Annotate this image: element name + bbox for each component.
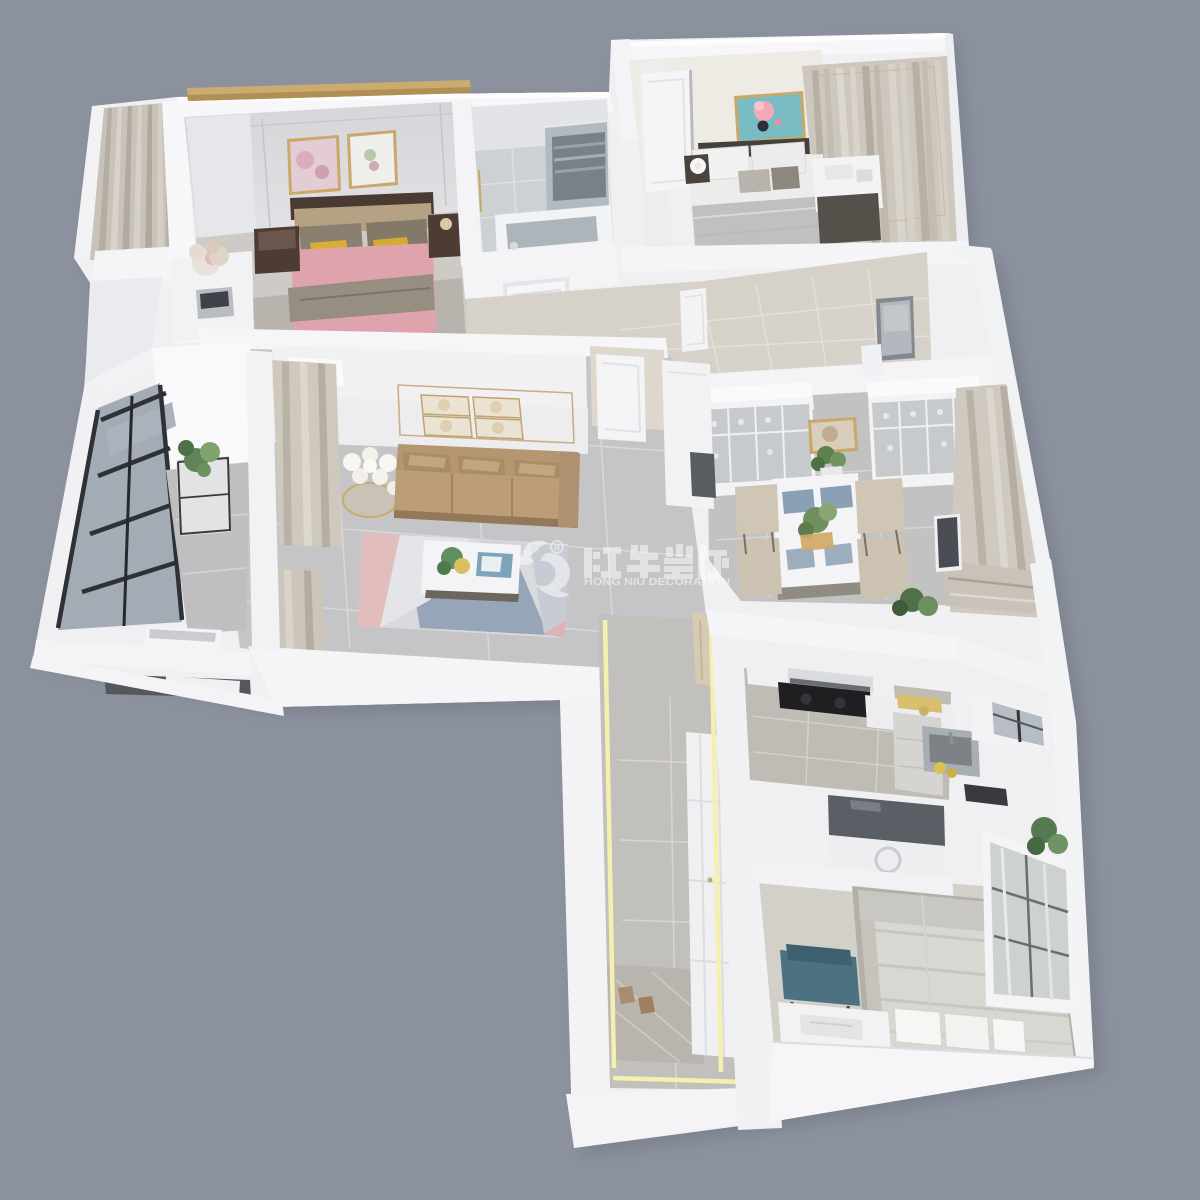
svg-text:HONG NIU DECORATION: HONG NIU DECORATION [584, 577, 730, 588]
svg-text:R: R [554, 543, 560, 553]
